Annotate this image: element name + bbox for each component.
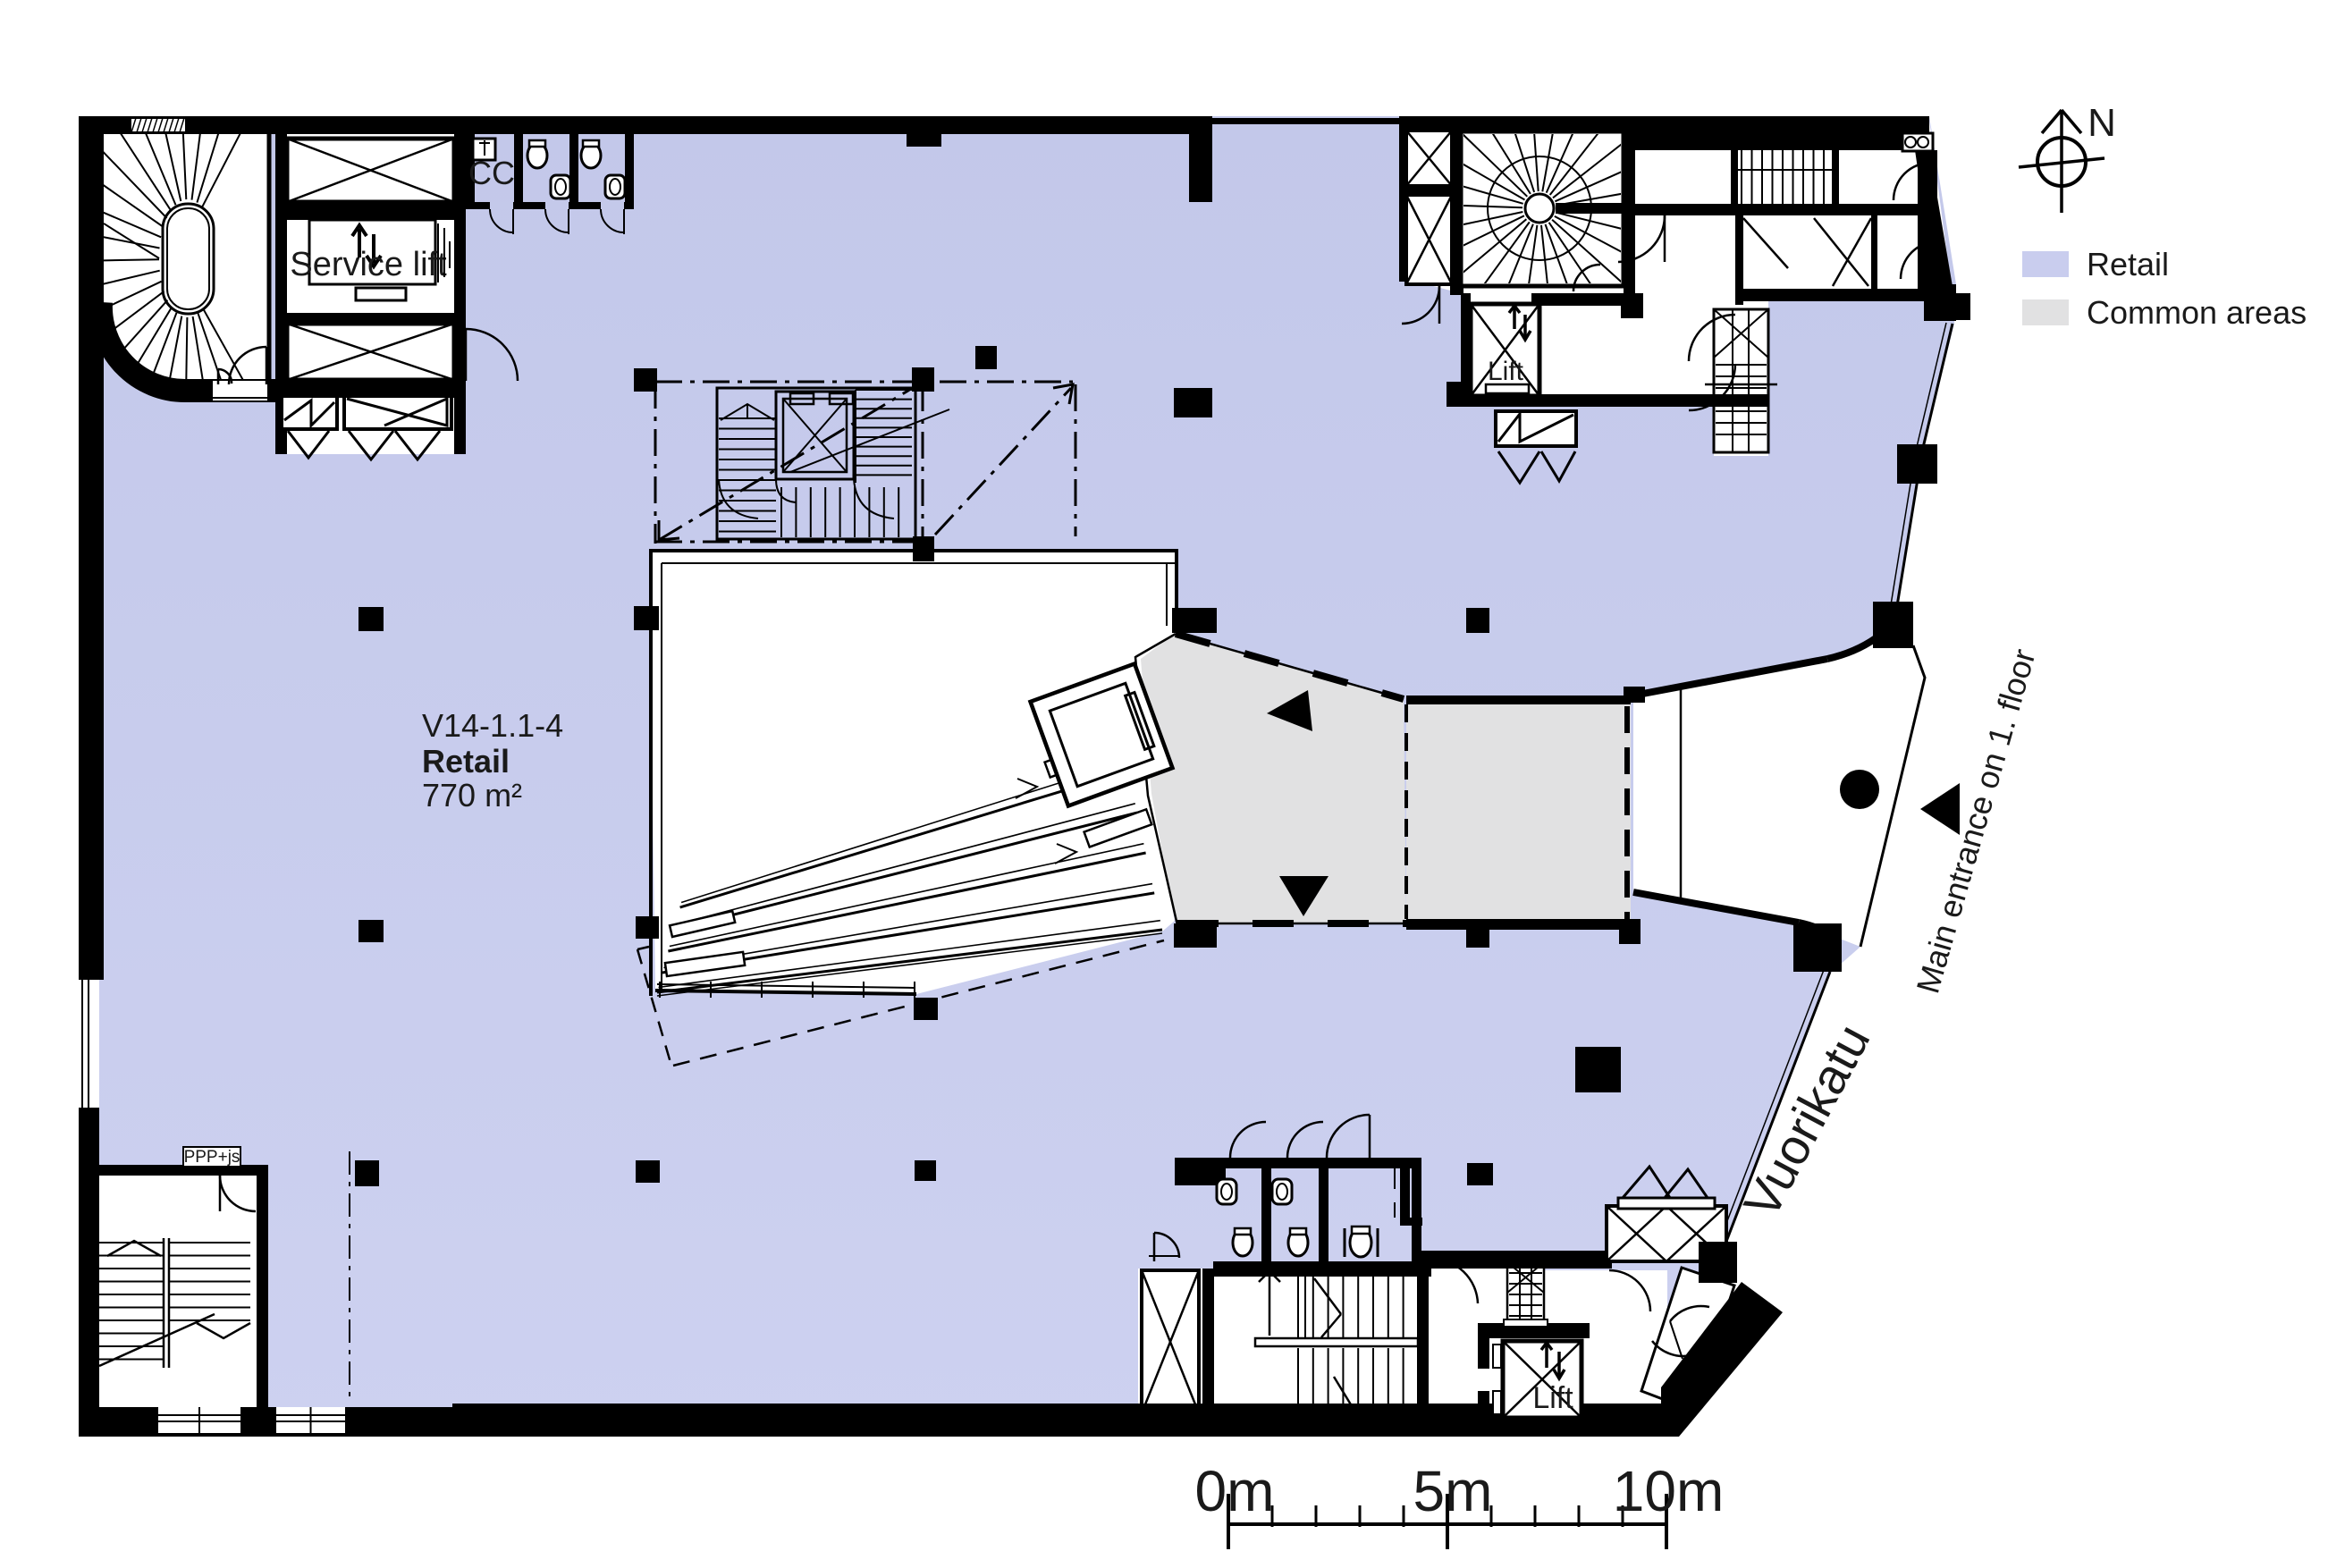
- svg-text:Service lift: Service lift: [290, 246, 447, 283]
- svg-text:0m: 0m: [1195, 1459, 1275, 1523]
- svg-text:Retail: Retail: [2087, 246, 2169, 282]
- svg-text:PPP+js: PPP+js: [184, 1148, 240, 1167]
- svg-text:Retail: Retail: [422, 743, 510, 780]
- svg-text:V14-1.1-4: V14-1.1-4: [422, 707, 563, 744]
- svg-text:CC: CC: [468, 155, 515, 191]
- svg-text:10m: 10m: [1613, 1459, 1725, 1523]
- svg-text:Lift: Lift: [1532, 1381, 1573, 1415]
- svg-text:770 m²: 770 m²: [422, 777, 522, 814]
- svg-text:Common areas: Common areas: [2087, 294, 2307, 331]
- svg-text:N: N: [2088, 101, 2116, 145]
- svg-text:5m: 5m: [1413, 1459, 1493, 1523]
- svg-text:Lift: Lift: [1488, 357, 1524, 386]
